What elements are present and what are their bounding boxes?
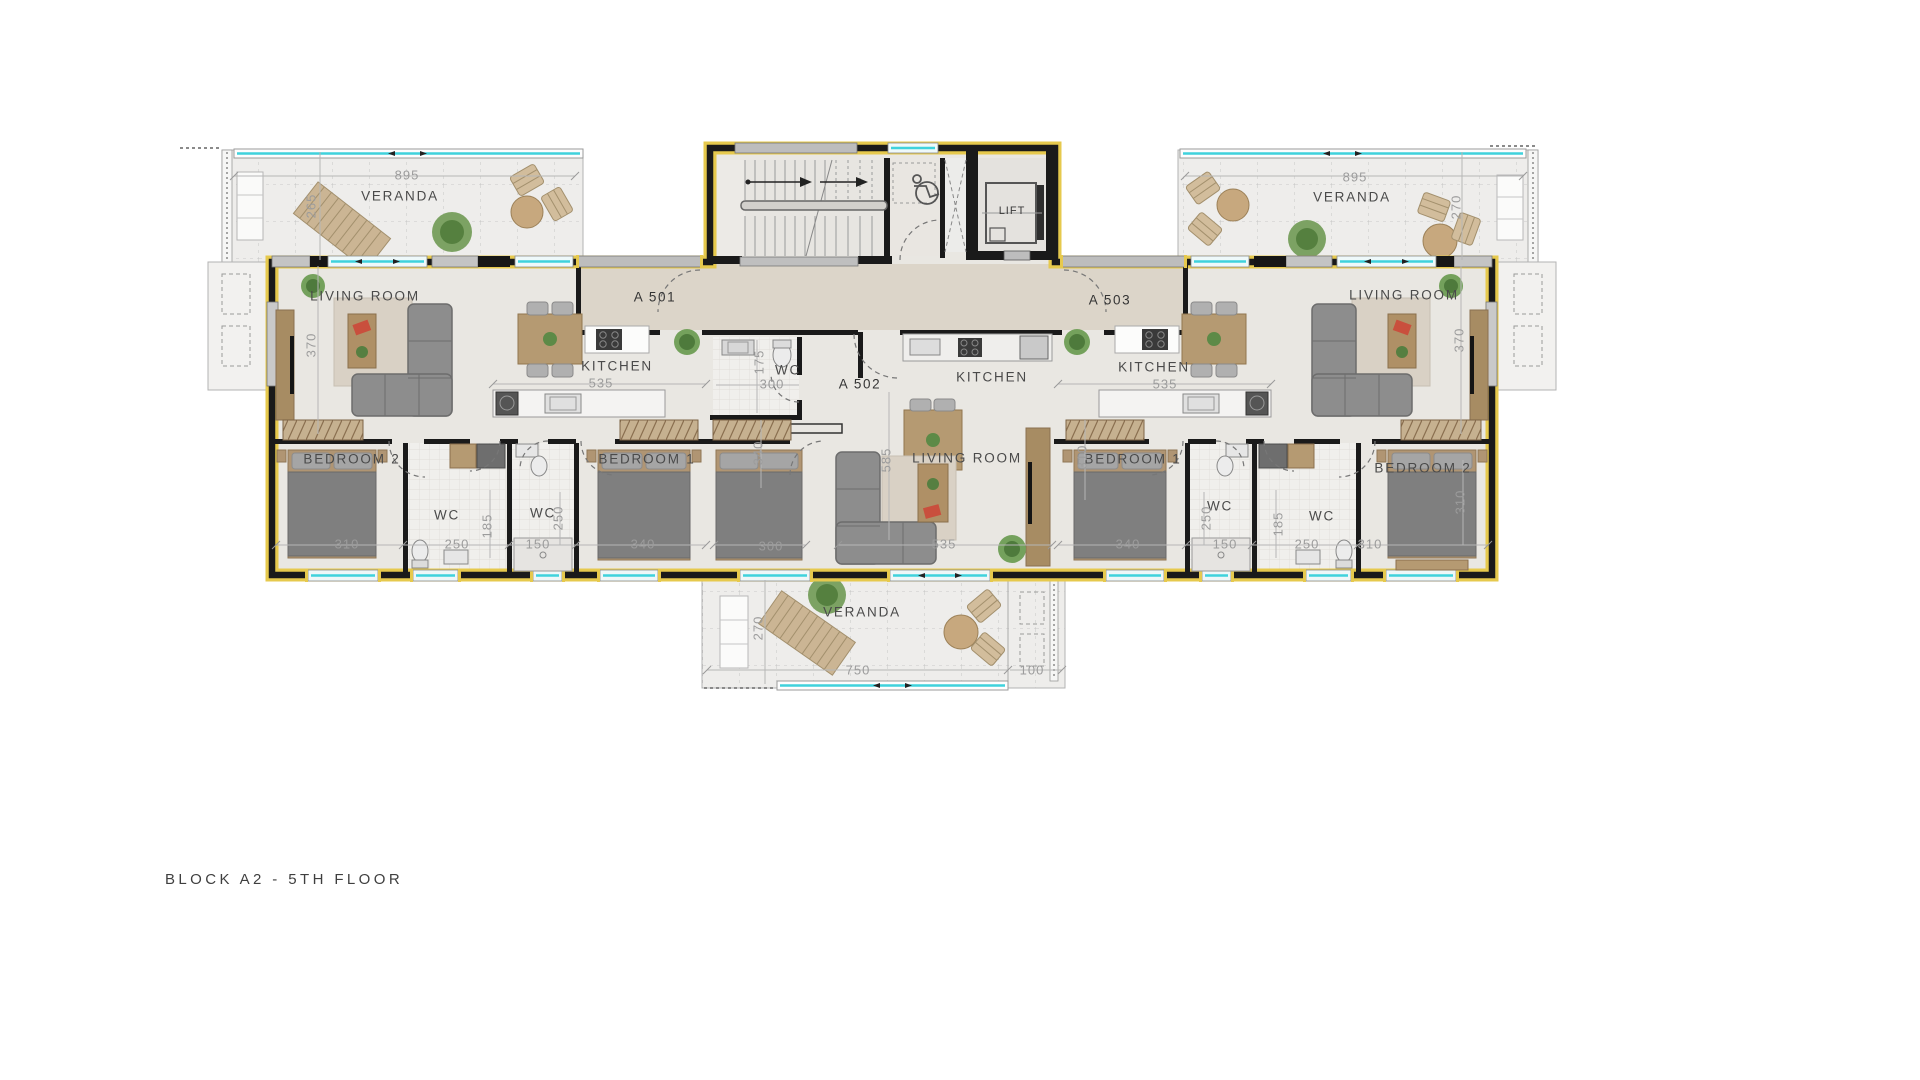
hob [596,329,622,350]
floor-plan-canvas: 895VERANDA265LIVING ROOM370A 501KITCHEN5… [0,0,1920,1080]
plan-svg [0,0,1920,1080]
veranda-top-left [180,148,583,270]
veranda-side-right [1492,262,1556,390]
bed-a502 [716,450,802,560]
plan-title: BLOCK A2 - 5TH FLOOR [165,871,403,888]
wardrobe [1401,420,1481,440]
veranda-tr-table-1 [1217,189,1249,221]
veranda-tl-bench [237,172,263,240]
veranda-bottom-plant [808,576,846,614]
wardrobe [713,420,791,440]
bed-bedroom2 [1377,450,1487,570]
wardrobe [283,420,363,440]
veranda-top-right [1178,146,1538,262]
veranda-bottom-table [944,615,978,649]
corridor-floor [578,264,1186,330]
hob [1142,329,1168,350]
veranda-side-left [208,262,272,390]
veranda-tl-plant [432,212,472,252]
veranda-tr-bench [1497,175,1523,240]
bed-bedroom1 [587,450,701,560]
wardrobe [1066,420,1144,440]
bed-bedroom1 [1063,450,1177,560]
tv-screen [290,336,294,394]
veranda-tr-table-2 [1423,224,1457,258]
veranda-bottom [702,575,1065,690]
veranda-bottom-bench [720,596,748,668]
wardrobe [620,420,698,440]
lobby-floor [890,160,940,256]
veranda-tl-table [511,196,543,228]
bed-bedroom2 [277,450,387,558]
service-shaft [945,158,966,252]
tv-screen [1028,462,1032,524]
fridge [1020,336,1048,359]
veranda-tr-plant [1288,220,1326,258]
tv-screen [1470,336,1474,394]
